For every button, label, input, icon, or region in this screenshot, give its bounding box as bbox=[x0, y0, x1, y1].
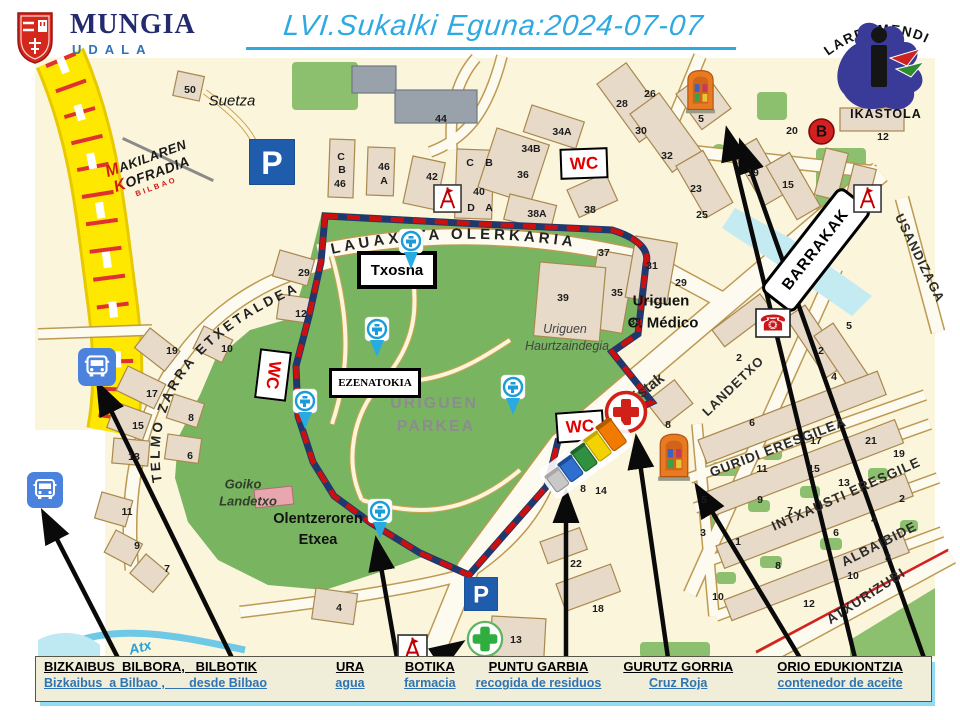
municipality-subtitle: UDALA bbox=[72, 42, 196, 57]
legend-item-orio-es: contenedor de aceite bbox=[778, 676, 903, 690]
mungia-shield-icon bbox=[12, 10, 58, 66]
school-name-bottom: IKASTOLA bbox=[850, 107, 922, 121]
legend-item-botika: BOTIKA bbox=[405, 659, 455, 674]
legend-item-ura: URA bbox=[336, 659, 364, 674]
legend-item-botika-es: farmacia bbox=[404, 676, 455, 690]
municipality-logo: MUNGIA UDALA bbox=[12, 10, 196, 66]
slide-title: LVI.Sukalki Eguna:2024-07-07 bbox=[246, 10, 740, 50]
municipality-name: MUNGIA bbox=[70, 10, 196, 40]
legend-item-bizkaibus-es: Bizkaibus a Bilbao , desde Bilbao bbox=[44, 676, 267, 690]
legend-item-bizkaibus: BIZKAIBUS BILBORA, BILBOTIK bbox=[44, 659, 257, 674]
legend-item-gurutz-gorria: GURUTZ GORRIA bbox=[623, 659, 733, 674]
legend-item-orio: ORIO EDUKIONTZIA bbox=[777, 659, 903, 674]
legend: BIZKAIBUS BILBORA, BILBOTIK Bizkaibus a … bbox=[35, 656, 932, 702]
slide: P ☎ bbox=[0, 0, 960, 720]
legend-item-puntu-garbia: PUNTU GARBIA bbox=[489, 659, 589, 674]
legend-item-gurutz-gorria-es: Cruz Roja bbox=[649, 676, 707, 690]
school-logo: LARRAMENDI IKASTOLA bbox=[812, 2, 960, 124]
legend-item-ura-es: agua bbox=[335, 676, 364, 690]
legend-item-puntu-garbia-es: recogida de residuos bbox=[476, 676, 602, 690]
